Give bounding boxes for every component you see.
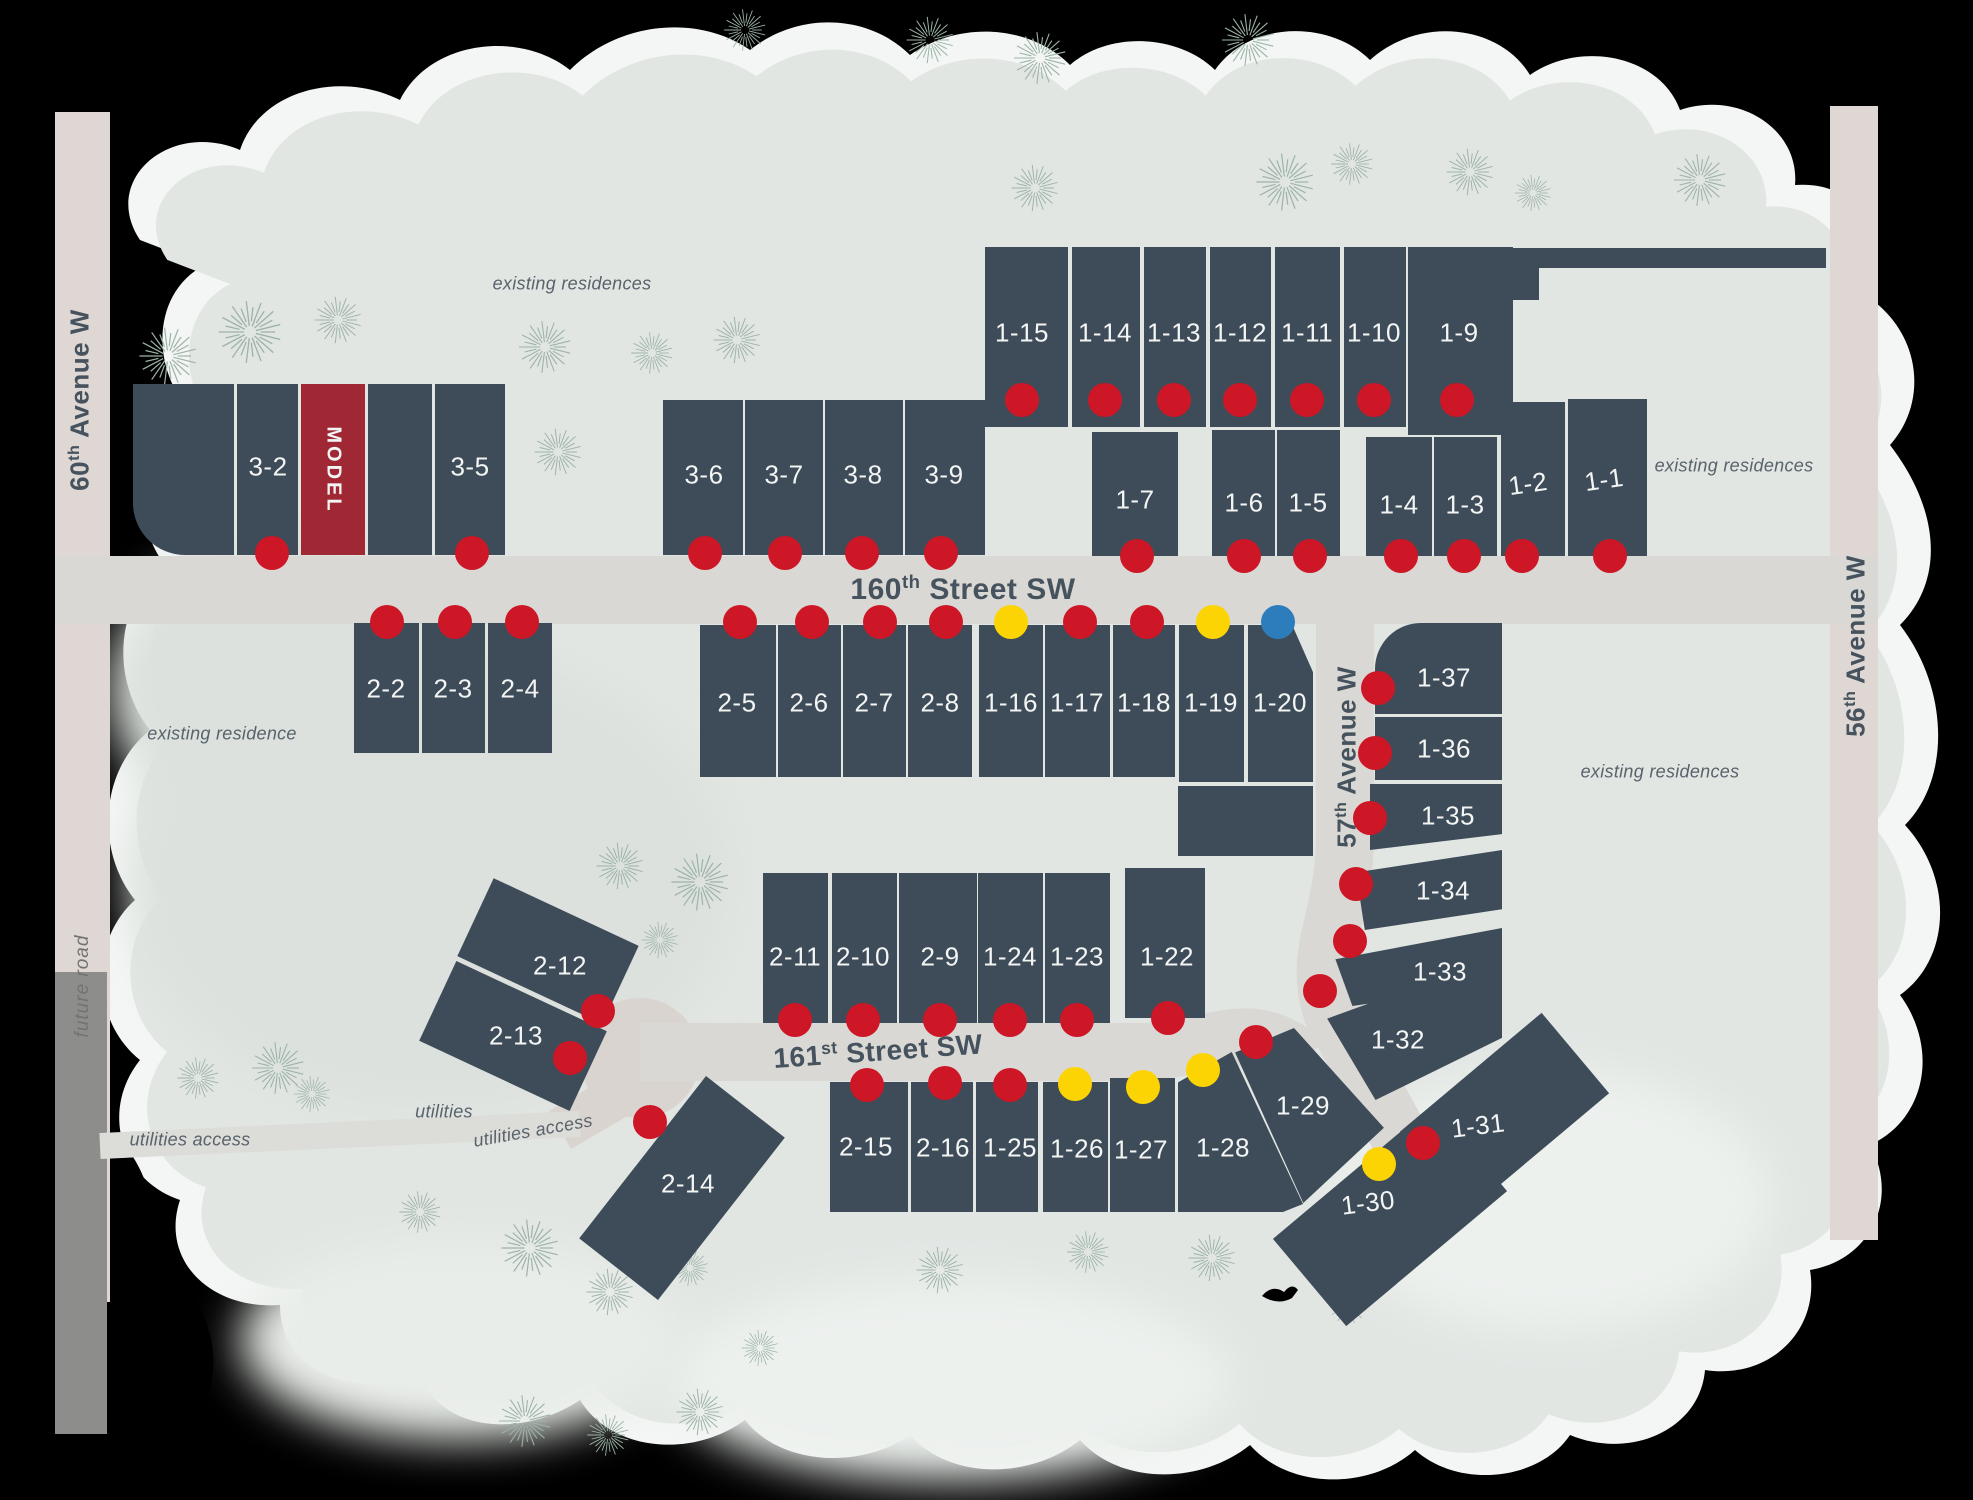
lot-label-1-2: 1-2 — [1506, 466, 1549, 502]
lot-label-1-27: 1-27 — [1114, 1135, 1168, 1166]
lot-label-3-5: 3-5 — [450, 452, 489, 483]
lot-label-1-1: 1-1 — [1582, 462, 1625, 498]
lot-label-1-7: 1-7 — [1115, 485, 1154, 516]
lot-label-1-35: 1-35 — [1421, 801, 1475, 832]
lot-label-1-4: 1-4 — [1379, 490, 1418, 521]
lot-label-1-19: 1-19 — [1184, 688, 1238, 719]
lot-label-2-14: 2-14 — [661, 1169, 715, 1200]
labels-layer: 3-2MODEL3-53-63-73-83-91-151-141-131-121… — [0, 0, 1973, 1500]
lot-label-1-29: 1-29 — [1276, 1091, 1330, 1122]
lot-label-2-7: 2-7 — [854, 688, 893, 719]
lot-label-3-9: 3-9 — [924, 460, 963, 491]
lot-label-model: MODEL — [322, 426, 345, 513]
lot-label-1-32: 1-32 — [1371, 1025, 1425, 1056]
lot-label-2-6: 2-6 — [789, 688, 828, 719]
lot-label-1-6: 1-6 — [1224, 488, 1263, 519]
note-utilities-access: utilities access — [472, 1110, 595, 1152]
lot-label-1-33: 1-33 — [1413, 957, 1467, 988]
lot-label-2-12: 2-12 — [533, 951, 587, 982]
lot-label-1-13: 1-13 — [1147, 318, 1201, 349]
site-map: 3-2MODEL3-53-63-73-83-91-151-141-131-121… — [0, 0, 1973, 1500]
note-existing-residence: existing residence — [147, 724, 296, 745]
lot-label-3-2: 3-2 — [248, 452, 287, 483]
lot-label-1-26: 1-26 — [1050, 1134, 1104, 1165]
lot-label-1-36: 1-36 — [1417, 734, 1471, 765]
lot-label-1-25: 1-25 — [983, 1133, 1037, 1164]
lot-label-1-18: 1-18 — [1117, 688, 1171, 719]
lot-label-1-30: 1-30 — [1339, 1184, 1396, 1221]
lot-label-2-9: 2-9 — [920, 942, 959, 973]
lot-label-1-10: 1-10 — [1347, 318, 1401, 349]
lot-label-1-12: 1-12 — [1213, 318, 1267, 349]
street-label-161st-street-sw: 161st Street SW — [772, 1027, 984, 1075]
street-label-60th-avenue-w: 60th Avenue W — [65, 309, 96, 491]
lot-label-1-31: 1-31 — [1449, 1107, 1506, 1144]
lot-label-2-2: 2-2 — [366, 674, 405, 705]
lot-label-1-28: 1-28 — [1196, 1133, 1250, 1164]
lot-label-1-11: 1-11 — [1281, 318, 1333, 349]
lot-label-2-13: 2-13 — [489, 1021, 543, 1052]
lot-label-1-16: 1-16 — [984, 688, 1038, 719]
lot-label-1-3: 1-3 — [1445, 490, 1484, 521]
street-label-57th-avenue-w: 57th Avenue W — [1332, 666, 1363, 848]
lot-label-2-15: 2-15 — [839, 1132, 893, 1163]
lot-label-1-37: 1-37 — [1417, 663, 1471, 694]
lot-label-2-8: 2-8 — [920, 688, 959, 719]
lot-label-1-17: 1-17 — [1050, 688, 1104, 719]
note-utilities: utilities — [415, 1102, 473, 1123]
lot-label-1-14: 1-14 — [1078, 318, 1132, 349]
lot-label-3-8: 3-8 — [843, 460, 882, 491]
lot-label-3-6: 3-6 — [684, 460, 723, 491]
lot-label-1-22: 1-22 — [1140, 942, 1194, 973]
street-label-56th-avenue-w: 56th Avenue W — [1841, 555, 1872, 737]
lot-label-1-9: 1-9 — [1439, 318, 1478, 349]
note-existing-residences: existing residences — [1655, 456, 1814, 477]
note-utilities-access: utilities access — [130, 1130, 251, 1151]
street-label-future-road: future road — [72, 935, 94, 1038]
note-existing-residences: existing residences — [1581, 762, 1740, 783]
lot-label-1-23: 1-23 — [1050, 942, 1104, 973]
lot-label-1-20: 1-20 — [1253, 688, 1307, 719]
lot-label-2-11: 2-11 — [769, 942, 821, 973]
lot-label-2-10: 2-10 — [836, 942, 890, 973]
lot-label-1-5: 1-5 — [1288, 488, 1327, 519]
lot-label-1-15: 1-15 — [995, 318, 1049, 349]
lot-label-2-3: 2-3 — [433, 674, 472, 705]
lot-label-3-7: 3-7 — [764, 460, 803, 491]
lot-label-2-16: 2-16 — [916, 1133, 970, 1164]
note-existing-residences: existing residences — [493, 274, 652, 295]
street-label-160th-street-sw: 160th Street SW — [850, 571, 1075, 607]
lot-label-1-34: 1-34 — [1416, 876, 1470, 907]
lot-label-2-5: 2-5 — [717, 688, 756, 719]
lot-label-1-24: 1-24 — [983, 942, 1037, 973]
lot-label-2-4: 2-4 — [500, 674, 539, 705]
